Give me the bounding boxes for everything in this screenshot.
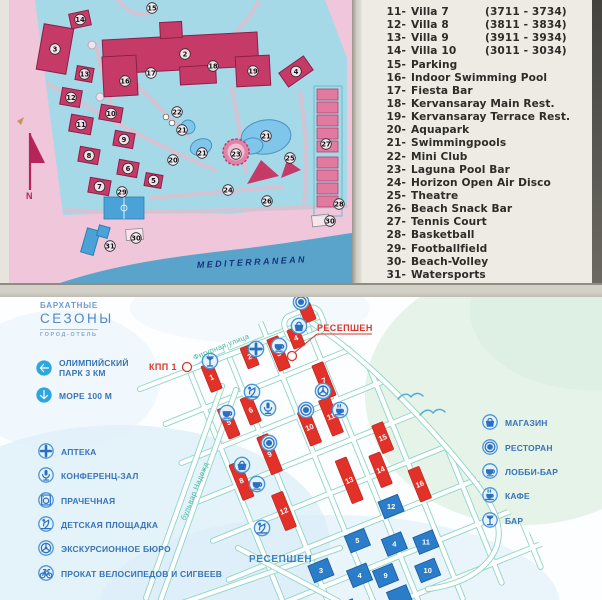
numbered-marker-label: 7 xyxy=(97,183,102,191)
blue-building-number: 12 xyxy=(387,502,395,511)
legend-item-label: Villa 7 xyxy=(411,6,449,18)
legend-row-arrow-left: ОЛИМПИЙСКИЙ ПАРК 3 КМ xyxy=(36,355,131,382)
legend-row-cafe: КАФЕ xyxy=(482,484,558,508)
arrow-down-icon xyxy=(36,387,52,405)
checkpoint-marker xyxy=(183,363,192,372)
numbered-marker-label: 8 xyxy=(87,152,92,160)
sign-legend-list: 11-Villa 7(3711 - 3734)12-Villa 8(3811 -… xyxy=(362,0,592,282)
two-resort-maps: N MEDITERRANEAN 143219413121011986571516… xyxy=(0,0,602,600)
legend-row-playground: ДЕТСКАЯ ПЛОЩАДКА xyxy=(38,513,222,537)
legend-item: 12-Villa 8(3811 - 3834) xyxy=(385,19,592,32)
legend-item-number: 14- xyxy=(385,45,406,57)
numbered-marker-label: 20 xyxy=(168,156,178,164)
legend-row-label: ОЛИМПИЙСКИЙ ПАРК 3 КМ xyxy=(59,359,131,379)
legend-item-label: Basketball xyxy=(411,229,475,241)
legend-row-arrow-down: МОРЕ 100 М xyxy=(36,382,131,409)
hotel-logo-line1: БАРХАТНЫЕ xyxy=(40,301,114,310)
numbered-marker-label: 28 xyxy=(334,200,344,208)
legend-row-label: ПРОКАТ ВЕЛОСИПЕДОВ И СИГВЕЕВ xyxy=(61,569,222,579)
legend-item-label: Mini Club xyxy=(411,151,467,163)
legend-item-label: Villa 10 xyxy=(411,45,456,57)
legend-item-label: Parking xyxy=(411,59,457,71)
legend-item: 23-Laguna Pool Bar xyxy=(385,164,592,177)
sign-frame-bottom xyxy=(0,283,602,297)
legend-row-label: БАР xyxy=(505,516,523,526)
numbered-marker-label: 21 xyxy=(197,149,207,157)
hotel-logo-line3: ГОРОД-ОТЕЛЬ xyxy=(40,332,114,338)
legend-row-restaurant: РЕСТОРАН xyxy=(482,435,558,459)
lobby-icon xyxy=(249,476,264,491)
legend-item: 11-Villa 7(3711 - 3734) xyxy=(385,6,592,19)
excursion-icon xyxy=(38,540,54,558)
legend-item-room-range: (3811 - 3834) xyxy=(485,19,567,31)
legend-row-lobby: ЛОББИ-БАР xyxy=(482,460,558,484)
conference-icon xyxy=(260,400,275,415)
numbered-marker-label: 2 xyxy=(183,50,188,58)
legend-item: 13-Villa 9(3911 - 3934) xyxy=(385,32,592,45)
legend-item: 24-Horizon Open Air Disco xyxy=(385,177,592,190)
legend-item: 18-Kervansaray Main Rest. xyxy=(385,98,592,111)
hotel-scheme: 12345678910111213141516 12541134910 Фигу… xyxy=(0,297,602,600)
legend-item-label: Kervansaray Terrace Rest. xyxy=(411,111,570,123)
numbered-marker-label: 29 xyxy=(117,188,127,196)
hotel-logo-divider xyxy=(40,329,98,330)
legend-item-number: 15- xyxy=(385,59,406,71)
restaurant-icon xyxy=(293,297,308,310)
numbered-marker-label: 30 xyxy=(325,217,335,225)
numbered-marker-label: 6 xyxy=(126,165,131,173)
legend-item-label: Footballfield xyxy=(411,243,487,255)
excursion-icon xyxy=(315,383,330,398)
legend-item: 20-Aquapark xyxy=(385,124,592,137)
numbered-marker-label: 23 xyxy=(231,150,241,158)
numbered-marker-label: 3 xyxy=(53,45,58,53)
legend-item-number: 17- xyxy=(385,85,406,97)
legend-item: 21-Swimmingpools xyxy=(385,137,592,150)
legend-row-label: МАГАЗИН xyxy=(505,418,548,428)
legend-item-label: Indoor Swimming Pool xyxy=(411,72,547,84)
blue-building-number: 10 xyxy=(424,566,432,575)
reception-top-label: РЕСЕПШЕН xyxy=(317,323,373,333)
legend-item-number: 24- xyxy=(385,177,406,189)
pharmacy-icon xyxy=(248,341,263,356)
numbered-marker-label: 21 xyxy=(261,132,271,140)
numbered-marker-label: 12 xyxy=(66,94,76,102)
shop-icon xyxy=(234,457,249,472)
lobby-icon xyxy=(482,463,498,481)
arrow-left-icon xyxy=(36,360,52,378)
legend-item-number: 16- xyxy=(385,72,406,84)
legend-item-room-range: (3711 - 3734) xyxy=(485,6,567,18)
bar-icon xyxy=(482,512,498,530)
shop-icon xyxy=(291,318,306,333)
legend-item-number: 28- xyxy=(385,229,406,241)
legend-item-number: 19- xyxy=(385,111,406,123)
legend-item-label: Swimmingpools xyxy=(411,137,506,149)
numbered-marker-label: 14 xyxy=(75,16,85,24)
numbered-marker-label: 9 xyxy=(122,136,127,144)
blue-building-number: 11 xyxy=(422,538,430,547)
legend-item: 22-Mini Club xyxy=(385,151,592,164)
legend-item-label: Horizon Open Air Disco xyxy=(411,177,551,189)
sign-frame-right-edge xyxy=(592,0,602,283)
legend-item-number: 31- xyxy=(385,269,406,281)
legend-item-number: 22- xyxy=(385,151,406,163)
checkpoint-label: КПП 1 xyxy=(149,362,177,372)
numbered-marker-label: 16 xyxy=(120,77,130,85)
legend-item: 31-Watersports xyxy=(385,269,592,282)
hotel-logo: БАРХАТНЫЕ СЕЗОНЫ ГОРОД-ОТЕЛЬ xyxy=(40,301,114,338)
numbered-marker-label: 22 xyxy=(172,108,182,116)
legend-row-label: ДЕТСКАЯ ПЛОЩАДКА xyxy=(61,520,158,530)
legend-row-label: ПРАЧЕЧНАЯ xyxy=(61,496,115,506)
numbered-marker-label: 5 xyxy=(151,177,156,185)
numbered-marker-label: 26 xyxy=(262,197,272,205)
numbered-marker-label: 13 xyxy=(80,70,90,78)
legend-item-label: Laguna Pool Bar xyxy=(411,164,510,176)
sign-legend-panel: 11-Villa 7(3711 - 3734)12-Villa 8(3811 -… xyxy=(362,0,592,283)
legend-item-label: Kervansaray Main Rest. xyxy=(411,98,555,110)
numbered-marker-label: 25 xyxy=(285,154,295,162)
legend-item-label: Villa 9 xyxy=(411,32,449,44)
legend-item: 27-Tennis Court xyxy=(385,216,592,229)
resort-grounds xyxy=(35,0,347,215)
legend-row-shop: МАГАЗИН xyxy=(482,411,558,435)
cafe-icon xyxy=(332,402,347,417)
legend-item-label: Villa 8 xyxy=(411,19,449,31)
legend-item-label: Fiesta Bar xyxy=(411,85,473,97)
numbered-marker-label: 21 xyxy=(177,126,187,134)
legend-item-number: 13- xyxy=(385,32,406,44)
legend-item-number: 11- xyxy=(385,6,406,18)
legend-row-label: МОРЕ 100 М xyxy=(59,391,112,401)
numbered-marker-label: 24 xyxy=(223,186,233,194)
reception-top-marker xyxy=(288,352,297,361)
blue-building-number: 9 xyxy=(383,571,387,580)
legend-item-label: Theatre xyxy=(411,190,458,202)
legend-item-number: 23- xyxy=(385,164,406,176)
legend-item-label: Beach-Volley xyxy=(411,256,488,268)
numbered-marker-label: 27 xyxy=(321,140,331,148)
numbered-marker-label: 11 xyxy=(76,121,86,129)
legend-food-shops: МАГАЗИНРЕСТОРАНЛОББИ-БАРКАФЕБАР xyxy=(482,411,558,533)
legend-row-conference: КОНФЕРЕНЦ-ЗАЛ xyxy=(38,464,222,488)
numbered-marker-label: 17 xyxy=(146,69,156,77)
blue-building-number: 3 xyxy=(319,566,323,575)
legend-item-label: Aquapark xyxy=(411,124,469,136)
cafe-icon xyxy=(482,487,498,505)
legend-item-room-range: (3011 - 3034) xyxy=(485,45,567,57)
pharmacy-icon xyxy=(38,443,54,461)
legend-item: 16-Indoor Swimming Pool xyxy=(385,72,592,85)
legend-item: 14-Villa 10(3011 - 3034) xyxy=(385,45,592,58)
numbered-marker-label: 4 xyxy=(294,68,299,76)
legend-row-bar: БАР xyxy=(482,509,558,533)
bike-icon xyxy=(38,565,54,583)
legend-services: АПТЕКАКОНФЕРЕНЦ-ЗАЛПРАЧЕЧНАЯДЕТСКАЯ ПЛОЩ… xyxy=(38,440,222,586)
legend-row-label: КОНФЕРЕНЦ-ЗАЛ xyxy=(61,471,139,481)
reception-bottom-label: РЕСЕПШЕН xyxy=(249,554,312,565)
legend-item: 28-Basketball xyxy=(385,229,592,242)
playground-icon xyxy=(38,516,54,534)
restaurant-icon xyxy=(298,402,313,417)
numbered-marker-label: 15 xyxy=(147,4,157,12)
legend-item-number: 21- xyxy=(385,137,406,149)
playground-icon xyxy=(254,520,269,535)
sign-frame-middle xyxy=(352,0,362,283)
tennis-basketball-courts xyxy=(314,86,342,216)
legend-item-number: 20- xyxy=(385,124,406,136)
lobby-icon xyxy=(219,405,234,420)
restaurant-icon xyxy=(482,439,498,457)
hotel-logo-line2: СЕЗОНЫ xyxy=(40,311,114,326)
laundry-icon xyxy=(38,492,54,510)
legend-item: 19-Kervansaray Terrace Rest. xyxy=(385,111,592,124)
resort-sign-photo: N MEDITERRANEAN 143219413121011986571516… xyxy=(0,0,602,297)
legend-item-number: 18- xyxy=(385,98,406,110)
legend-item-number: 12- xyxy=(385,19,406,31)
legend-row-bike: ПРОКАТ ВЕЛОСИПЕДОВ И СИГВЕЕВ xyxy=(38,561,222,585)
legend-item: 15-Parking xyxy=(385,59,592,72)
legend-item-label: Beach Snack Bar xyxy=(411,203,512,215)
legend-row-label: ЭКСКУРСИОННОЕ БЮРО xyxy=(61,544,171,554)
legend-row-label: ЛОББИ-БАР xyxy=(505,467,558,477)
legend-row-label: РЕСТОРАН xyxy=(505,443,553,453)
numbered-marker-label: 10 xyxy=(106,110,116,118)
legend-row-label: АПТЕКА xyxy=(61,447,97,457)
legend-item-label: Tennis Court xyxy=(411,216,487,228)
legend-row-label: КАФЕ xyxy=(505,491,530,501)
resort-map: N MEDITERRANEAN 143219413121011986571516… xyxy=(9,0,352,283)
legend-item-label: Watersports xyxy=(411,269,486,281)
resort-building xyxy=(160,21,183,38)
legend-item-number: 30- xyxy=(385,256,406,268)
legend-item-number: 29- xyxy=(385,243,406,255)
blue-building-number: 5 xyxy=(355,536,359,545)
resort-map-svg: N MEDITERRANEAN 143219413121011986571516… xyxy=(9,0,352,283)
legend-item-number: 26- xyxy=(385,203,406,215)
legend-distances: ОЛИМПИЙСКИЙ ПАРК 3 КММОРЕ 100 М xyxy=(36,355,131,409)
legend-item: 29-Footballfield xyxy=(385,243,592,256)
numbered-marker-label: 19 xyxy=(248,67,258,75)
legend-row-excursion: ЭКСКУРСИОННОЕ БЮРО xyxy=(38,537,222,561)
resort-building xyxy=(102,55,138,97)
legend-row-laundry: ПРАЧЕЧНАЯ xyxy=(38,489,222,513)
playground-icon xyxy=(244,384,259,399)
numbered-marker-label: 30 xyxy=(131,234,141,242)
numbered-marker-label: 18 xyxy=(208,62,218,70)
conference-icon xyxy=(38,467,54,485)
legend-item: 30-Beach-Volley xyxy=(385,256,592,269)
numbered-marker-label: 31 xyxy=(105,242,115,250)
lobby-icon xyxy=(271,338,286,353)
legend-item: 17-Fiesta Bar xyxy=(385,85,592,98)
compass-label: N xyxy=(26,191,33,201)
legend-item: 26-Beach Snack Bar xyxy=(385,203,592,216)
legend-row-pharmacy: АПТЕКА xyxy=(38,440,222,464)
shop-icon xyxy=(482,414,498,432)
legend-item-number: 25- xyxy=(385,190,406,202)
restaurant-icon xyxy=(261,435,276,450)
legend-item-number: 27- xyxy=(385,216,406,228)
football-field xyxy=(104,197,144,219)
legend-item: 25-Theatre xyxy=(385,190,592,203)
legend-item-room-range: (3911 - 3934) xyxy=(485,32,567,44)
